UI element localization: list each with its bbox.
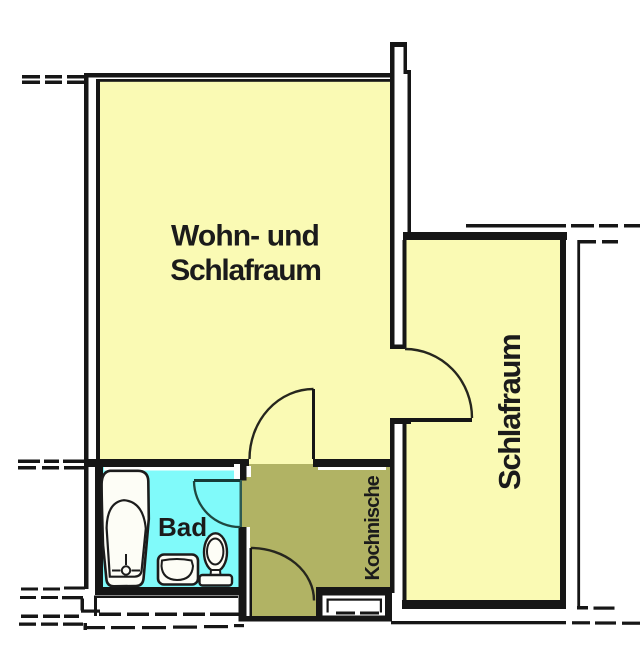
svg-text:Schlafraum: Schlafraum [492, 335, 527, 490]
svg-text:Schlafraum: Schlafraum [170, 254, 320, 287]
svg-text:Bad: Bad [158, 512, 207, 542]
svg-text:Wohn- und: Wohn- und [171, 220, 319, 253]
svg-text:Kochnische: Kochnische [362, 475, 384, 580]
